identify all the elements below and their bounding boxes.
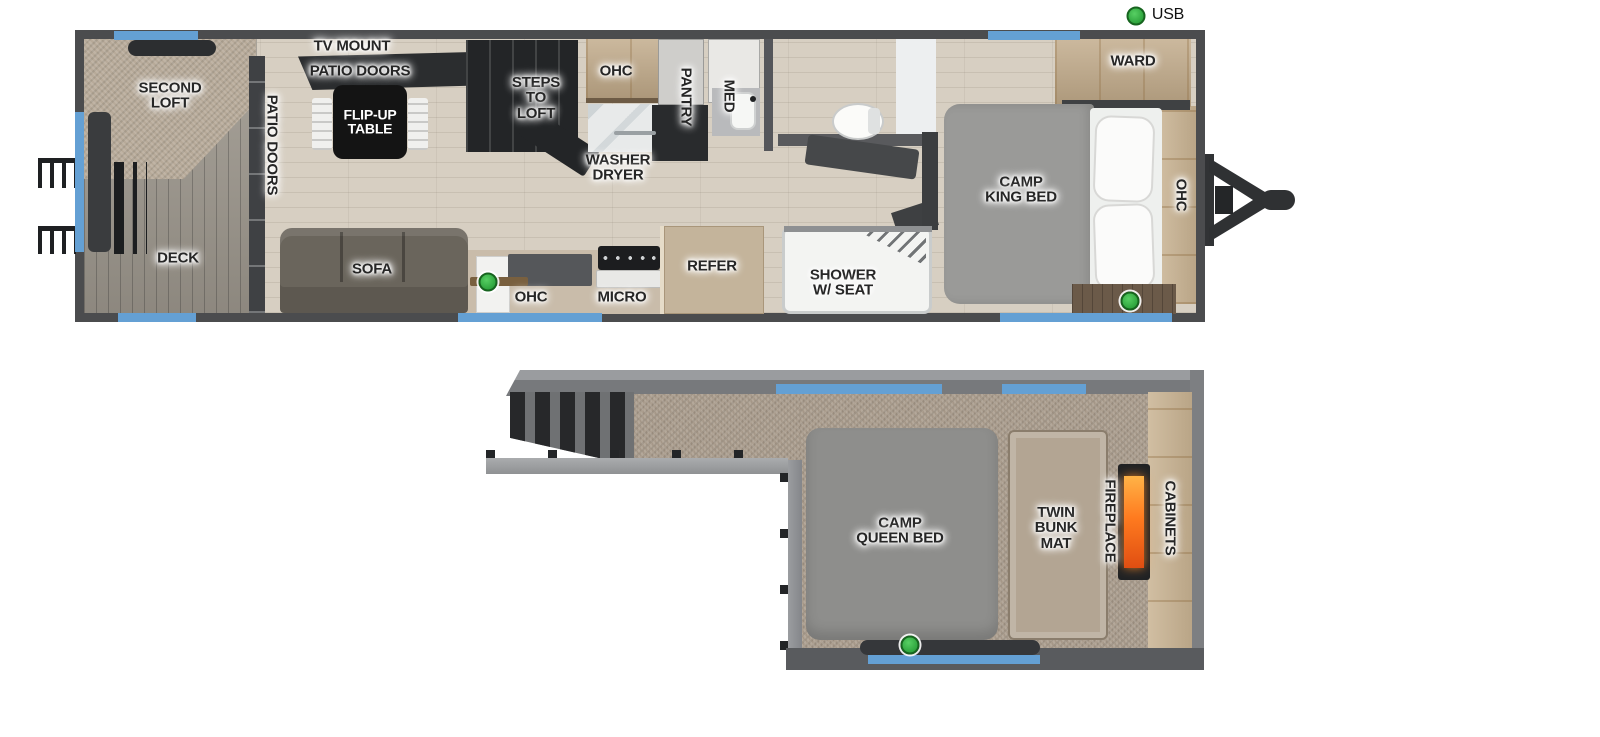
usb-indicator-icon [901, 636, 920, 655]
pillow [1093, 115, 1156, 203]
loft-right-wall [1190, 370, 1204, 668]
ward-label: WARD [1110, 53, 1155, 68]
patio-doors-vertical-label: PATIO DOORS [264, 95, 279, 196]
toilet-tank [868, 108, 880, 134]
steps-to-loft-label: STEPS TO LOFT [512, 75, 560, 121]
usb-indicator-icon [1127, 7, 1146, 26]
second-loft-label: SECOND LOFT [139, 81, 202, 112]
microwave [596, 270, 668, 288]
loft-railing-bar [486, 458, 788, 474]
ohc-bedroom-label: OHC [1173, 179, 1188, 212]
entry-railing-lower [38, 226, 76, 254]
entry-railing-upper [38, 158, 76, 188]
trailer-hitch [1205, 148, 1297, 252]
camp-queen-bed-label: CAMP QUEEN BED [856, 516, 943, 547]
window-strip [868, 655, 1040, 664]
washer-dryer-label: WASHER DRYER [586, 153, 651, 184]
deck-railing-inner [114, 162, 147, 254]
entry-door-window [75, 112, 84, 252]
sofa-cushion-seam [340, 232, 343, 282]
deck-door [88, 112, 111, 252]
loft-left-wall [788, 460, 802, 668]
med-label: MED [721, 80, 736, 113]
sofa-cushion-seam [402, 232, 405, 282]
washer-handle [614, 131, 656, 135]
refer-label: REFER [687, 258, 737, 273]
usb-indicator-icon [1121, 292, 1140, 311]
table-bench-left [312, 98, 332, 150]
usb-indicator-icon [479, 273, 498, 292]
fireplace-fire [1124, 476, 1144, 568]
table-bench-right [408, 98, 428, 150]
pantry-label: PANTRY [678, 68, 693, 127]
tv-mount-label: TV MOUNT [314, 38, 391, 53]
usb-legend-label: USB [1152, 7, 1184, 23]
window-strip [776, 384, 942, 394]
loft-vent [128, 40, 216, 56]
bath-wall-panel [896, 39, 936, 141]
window-strip [988, 31, 1080, 40]
loft-bed-step [860, 640, 1040, 655]
window-strip [1000, 313, 1172, 322]
bath-wall-left [764, 39, 773, 151]
window-strip [118, 313, 196, 322]
pillow [1093, 203, 1156, 291]
lav-faucet [750, 96, 756, 102]
window-strip [1002, 384, 1086, 394]
window-strip [458, 313, 602, 322]
cabinets-label: CABINETS [1162, 480, 1177, 555]
deck-label: DECK [157, 250, 199, 265]
camp-king-bed-label: CAMP KING BED [985, 175, 1057, 206]
flip-up-table-label: FLIP-UP TABLE [343, 108, 396, 137]
shower-label: SHOWER W/ SEAT [810, 268, 876, 299]
fireplace-label: FIREPLACE [1102, 479, 1117, 562]
patio-doors-label: PATIO DOORS [310, 63, 411, 78]
sofa-label: SOFA [352, 261, 392, 276]
ohc-kitchen-label: OHC [515, 289, 548, 304]
ohc-washer-label: OHC [600, 63, 633, 78]
shower-glass [784, 226, 932, 232]
twin-bunk-mat-label: TWIN BUNK MAT [1035, 505, 1078, 551]
wardrobe-cabinet [1055, 39, 1191, 107]
micro-label: MICRO [598, 289, 647, 304]
stove-cooktop [598, 246, 660, 270]
window-strip [114, 31, 198, 40]
bedroom-doorway [922, 132, 938, 230]
